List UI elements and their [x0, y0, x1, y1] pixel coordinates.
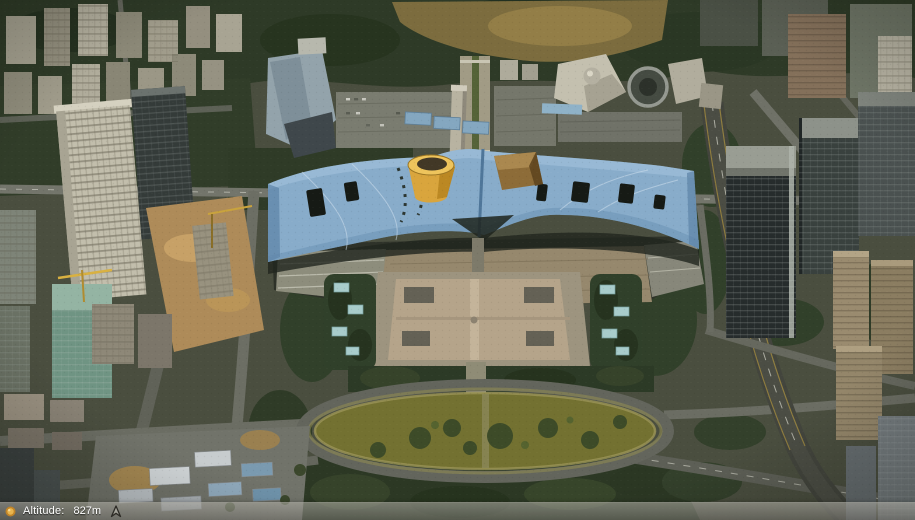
aerial-imagery	[0, 0, 915, 520]
altitude-label: Altitude:	[23, 503, 65, 520]
map-3d-viewport[interactable]: Altitude: 827m	[0, 0, 915, 520]
status-bar: Altitude: 827m	[0, 502, 915, 520]
vignette-overlay	[0, 0, 915, 520]
streaming-status-icon	[5, 506, 16, 517]
altitude-value: 827m	[74, 503, 102, 520]
north-arrow-icon	[110, 505, 122, 518]
